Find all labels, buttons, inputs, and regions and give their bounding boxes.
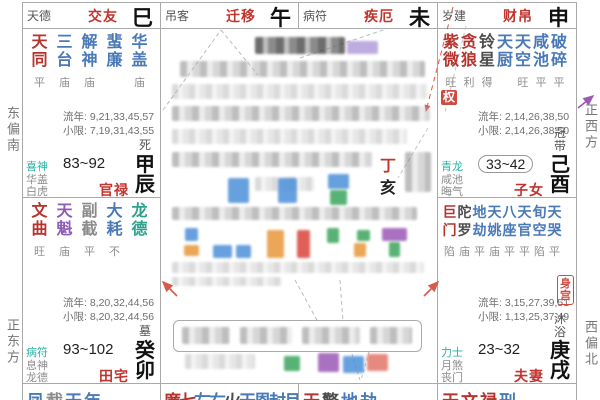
- censored-highlight-block: [367, 354, 388, 371]
- decade-age-range: 23~32: [478, 341, 520, 358]
- body-palace-badge: 身宫: [557, 275, 574, 305]
- xiaoxian-ages: 小限: 7,19,31,43,55: [63, 123, 154, 138]
- star-天同: 天同: [27, 34, 52, 70]
- center-year-stem: 丁: [379, 158, 397, 176]
- star-char: 刑: [498, 387, 517, 400]
- star-char: 年: [83, 387, 102, 400]
- censored-highlight-block: [184, 245, 199, 256]
- brightness: 庙: [77, 74, 102, 90]
- censored-highlight-block: [267, 230, 284, 258]
- star-紫微: 紫微: [442, 34, 460, 70]
- palace-name: 交友: [88, 6, 118, 26]
- star-names: 天同三台解神蜚廉华盖: [27, 34, 155, 70]
- star-char: 天: [441, 387, 460, 400]
- star-names-clipped: 凤截天年: [26, 387, 102, 400]
- censored-highlight-block: [297, 230, 310, 258]
- censored-highlight-block: [357, 230, 370, 241]
- stem-branch: 己酉: [549, 155, 571, 195]
- censored-highlight-block: [382, 228, 407, 241]
- censored-text-block: [172, 152, 372, 167]
- star-解神: 解神: [77, 34, 102, 70]
- censored-highlight-block: [236, 245, 251, 258]
- star-大耗: 大耗: [102, 203, 127, 239]
- brightness: 利: [460, 74, 478, 90]
- censored-highlight-block: [347, 41, 378, 54]
- yearly-shensha-label: 岁建: [442, 7, 466, 24]
- brightness: 平: [502, 243, 517, 259]
- star-char: 恩: [254, 387, 269, 400]
- star-char: 擎: [321, 387, 340, 400]
- decade-age-range: 83~92: [63, 155, 105, 172]
- toolbar-button-blurred[interactable]: [182, 327, 230, 344]
- yearly-shensha-label: 天德: [27, 7, 51, 24]
- brightness: 庙: [52, 243, 77, 259]
- brightness: 平: [532, 74, 550, 90]
- brightness: 庙: [487, 243, 502, 259]
- toolbar-button-blurred[interactable]: [370, 327, 412, 344]
- star-names-clipped: 天文禄刑: [441, 387, 517, 400]
- brightness: 陷: [442, 243, 457, 259]
- center-year-branch: 亥: [379, 180, 397, 198]
- brightness: 不: [102, 243, 127, 259]
- star-天姚: 天姚: [487, 203, 502, 239]
- star-char: 地: [340, 387, 359, 400]
- censored-highlight-block: [389, 242, 400, 257]
- star-names-clipped: 天擎地劫: [302, 387, 378, 400]
- yearly-shensha-label: 吊客: [165, 7, 189, 24]
- censored-highlight-block: [278, 178, 297, 203]
- star-三台: 三台: [52, 34, 77, 70]
- hua-transform-badge: 权: [441, 90, 457, 105]
- censored-highlight-block: [185, 228, 198, 241]
- palace-cell-partial-bottom[interactable]: 天擎地劫: [298, 384, 437, 400]
- star-天魁: 天魁: [52, 203, 77, 239]
- star-char: 封: [269, 387, 284, 400]
- star-八座: 八座: [502, 203, 517, 239]
- palace-cell-partial-bottom[interactable]: 天文禄刑: [437, 384, 576, 400]
- star-天厨: 天厨: [496, 34, 514, 70]
- palace-name: 田宅: [99, 366, 129, 386]
- brightness: 旺: [27, 243, 52, 259]
- palace-name: 迁移: [226, 6, 256, 26]
- star-char: 禄: [479, 387, 498, 400]
- brightness: 平: [472, 243, 487, 259]
- censored-highlight-block: [354, 243, 366, 257]
- liunian-ages: 流年: 8,20,32,44,56: [63, 295, 154, 310]
- stem-branch: 甲辰: [134, 155, 156, 195]
- brightness: 平: [27, 74, 52, 90]
- brightness: 庙: [127, 74, 152, 90]
- star-brightness: 陷庙平庙平平陷平: [442, 243, 571, 259]
- censored-highlight-block: [328, 174, 349, 189]
- censored-highlight-block: [213, 245, 232, 258]
- star-文曲: 文曲: [27, 203, 52, 239]
- star-副截: 副截: [77, 203, 102, 239]
- censored-highlight-block: [343, 356, 364, 373]
- life-stage: 墓: [138, 325, 152, 338]
- star-破碎: 破碎: [550, 34, 568, 70]
- star-names: 巨门陀罗地劫天姚八座天官旬空天哭: [442, 203, 571, 239]
- brightness: 平: [550, 74, 568, 90]
- star-咸池: 咸池: [532, 34, 550, 70]
- star-陀罗: 陀罗: [457, 203, 472, 239]
- liunian-ages: 流年: 3,15,27,39,51: [478, 295, 569, 310]
- star-天官: 天官: [517, 203, 532, 239]
- toolbar-button-blurred[interactable]: [302, 327, 360, 344]
- brightness: [496, 74, 514, 90]
- censored-text-block: [172, 129, 407, 144]
- brightness: [127, 243, 152, 259]
- star-char: 廉: [164, 387, 179, 400]
- life-stage: 冠带: [553, 127, 567, 153]
- star-names: 文曲天魁副截大耗龙德: [27, 203, 155, 239]
- liunian-ages: 流年: 2,14,26,38,50: [478, 109, 569, 124]
- star-char: 凤: [26, 387, 45, 400]
- decade-age-range: 93~102: [63, 341, 113, 358]
- star-brightness: 旺利得旺平平: [442, 74, 571, 90]
- toolbar-button-blurred[interactable]: [240, 327, 292, 344]
- brightness: 旺: [514, 74, 532, 90]
- yearly-shensha-label: 病符: [303, 7, 327, 24]
- palace-name: 财帛: [503, 6, 533, 26]
- censored-text-block: [172, 84, 427, 99]
- star-char: 劫: [359, 387, 378, 400]
- branch-char: 午: [270, 2, 291, 32]
- palace-name: 疾厄: [364, 6, 394, 26]
- star-char: 天: [302, 387, 321, 400]
- star-char: 左: [194, 387, 209, 400]
- star-char: 文: [460, 387, 479, 400]
- brightness: 平: [547, 243, 562, 259]
- palace-name: 夫妻: [514, 366, 544, 386]
- decade-age-range: 33~42: [478, 155, 533, 173]
- star-旬空: 旬空: [532, 203, 547, 239]
- star-char: 天: [64, 387, 83, 400]
- star-龙德: 龙德: [127, 203, 152, 239]
- shensha-label: 丧门: [441, 369, 463, 385]
- star-names-clipped: 廉七左右火天恩封月: [164, 387, 298, 400]
- liunian-ages: 流年: 9,21,33,45,57: [63, 109, 154, 124]
- brightness: 旺: [442, 74, 460, 90]
- star-names: 紫微贪狼铃星天厨天空咸池破碎: [442, 34, 571, 70]
- censored-text-block: [180, 61, 425, 77]
- star-蜚廉: 蜚廉: [102, 34, 127, 70]
- star-天哭: 天哭: [547, 203, 562, 239]
- censored-highlight-block: [327, 228, 339, 243]
- star-贪狼: 贪狼: [460, 34, 478, 70]
- star-char: 七: [179, 387, 194, 400]
- life-stage: 沐浴: [553, 313, 567, 339]
- star-brightness: 平庙庙庙: [27, 74, 155, 90]
- censored-highlight-block: [284, 356, 300, 371]
- censored-highlight-block: [228, 178, 249, 203]
- censored-text-block: [172, 106, 430, 121]
- star-char: 截: [45, 387, 64, 400]
- censored-text-block: [255, 37, 345, 54]
- stem-branch: 癸卯: [134, 341, 156, 381]
- xiaoxian-ages: 小限: 8,20,32,44,56: [63, 309, 154, 324]
- ziwei-chart-app: 东偏南 正东方 正西方 西偏北 丁: [0, 0, 600, 400]
- star-巨门: 巨门: [442, 203, 457, 239]
- star-char: 火: [224, 387, 239, 400]
- censored-highlight-block: [318, 353, 339, 372]
- palace-cell-partial-bottom[interactable]: 廉七左右火天恩封月: [160, 384, 298, 400]
- star-char: 右: [209, 387, 224, 400]
- shensha-label: 龙德: [26, 369, 48, 385]
- censored-text-block: [172, 277, 282, 286]
- life-stage: 死: [138, 139, 152, 152]
- brightness: 平: [517, 243, 532, 259]
- star-地劫: 地劫: [472, 203, 487, 239]
- star-char: 天: [239, 387, 254, 400]
- censored-text-block: [172, 207, 417, 220]
- star-天空: 天空: [514, 34, 532, 70]
- brightness: 庙: [457, 243, 472, 259]
- stem-branch: 庚戌: [549, 341, 571, 381]
- censored-text-block: [185, 354, 255, 369]
- censored-text-block: [172, 262, 424, 273]
- brightness: [102, 74, 127, 90]
- palace-cell-partial-bottom[interactable]: 凤截天年: [22, 384, 160, 400]
- branch-char: 未: [409, 2, 430, 32]
- brightness: 得: [478, 74, 496, 90]
- star-char: 月: [284, 387, 298, 400]
- brightness: 庙: [52, 74, 77, 90]
- star-铃星: 铃星: [478, 34, 496, 70]
- brightness: 陷: [532, 243, 547, 259]
- brightness: 平: [77, 243, 102, 259]
- star-brightness: 旺庙平不: [27, 243, 155, 259]
- censored-text-block: [405, 152, 431, 192]
- censored-highlight-block: [330, 190, 347, 205]
- center-toolbar[interactable]: [173, 320, 422, 352]
- star-华盖: 华盖: [127, 34, 152, 70]
